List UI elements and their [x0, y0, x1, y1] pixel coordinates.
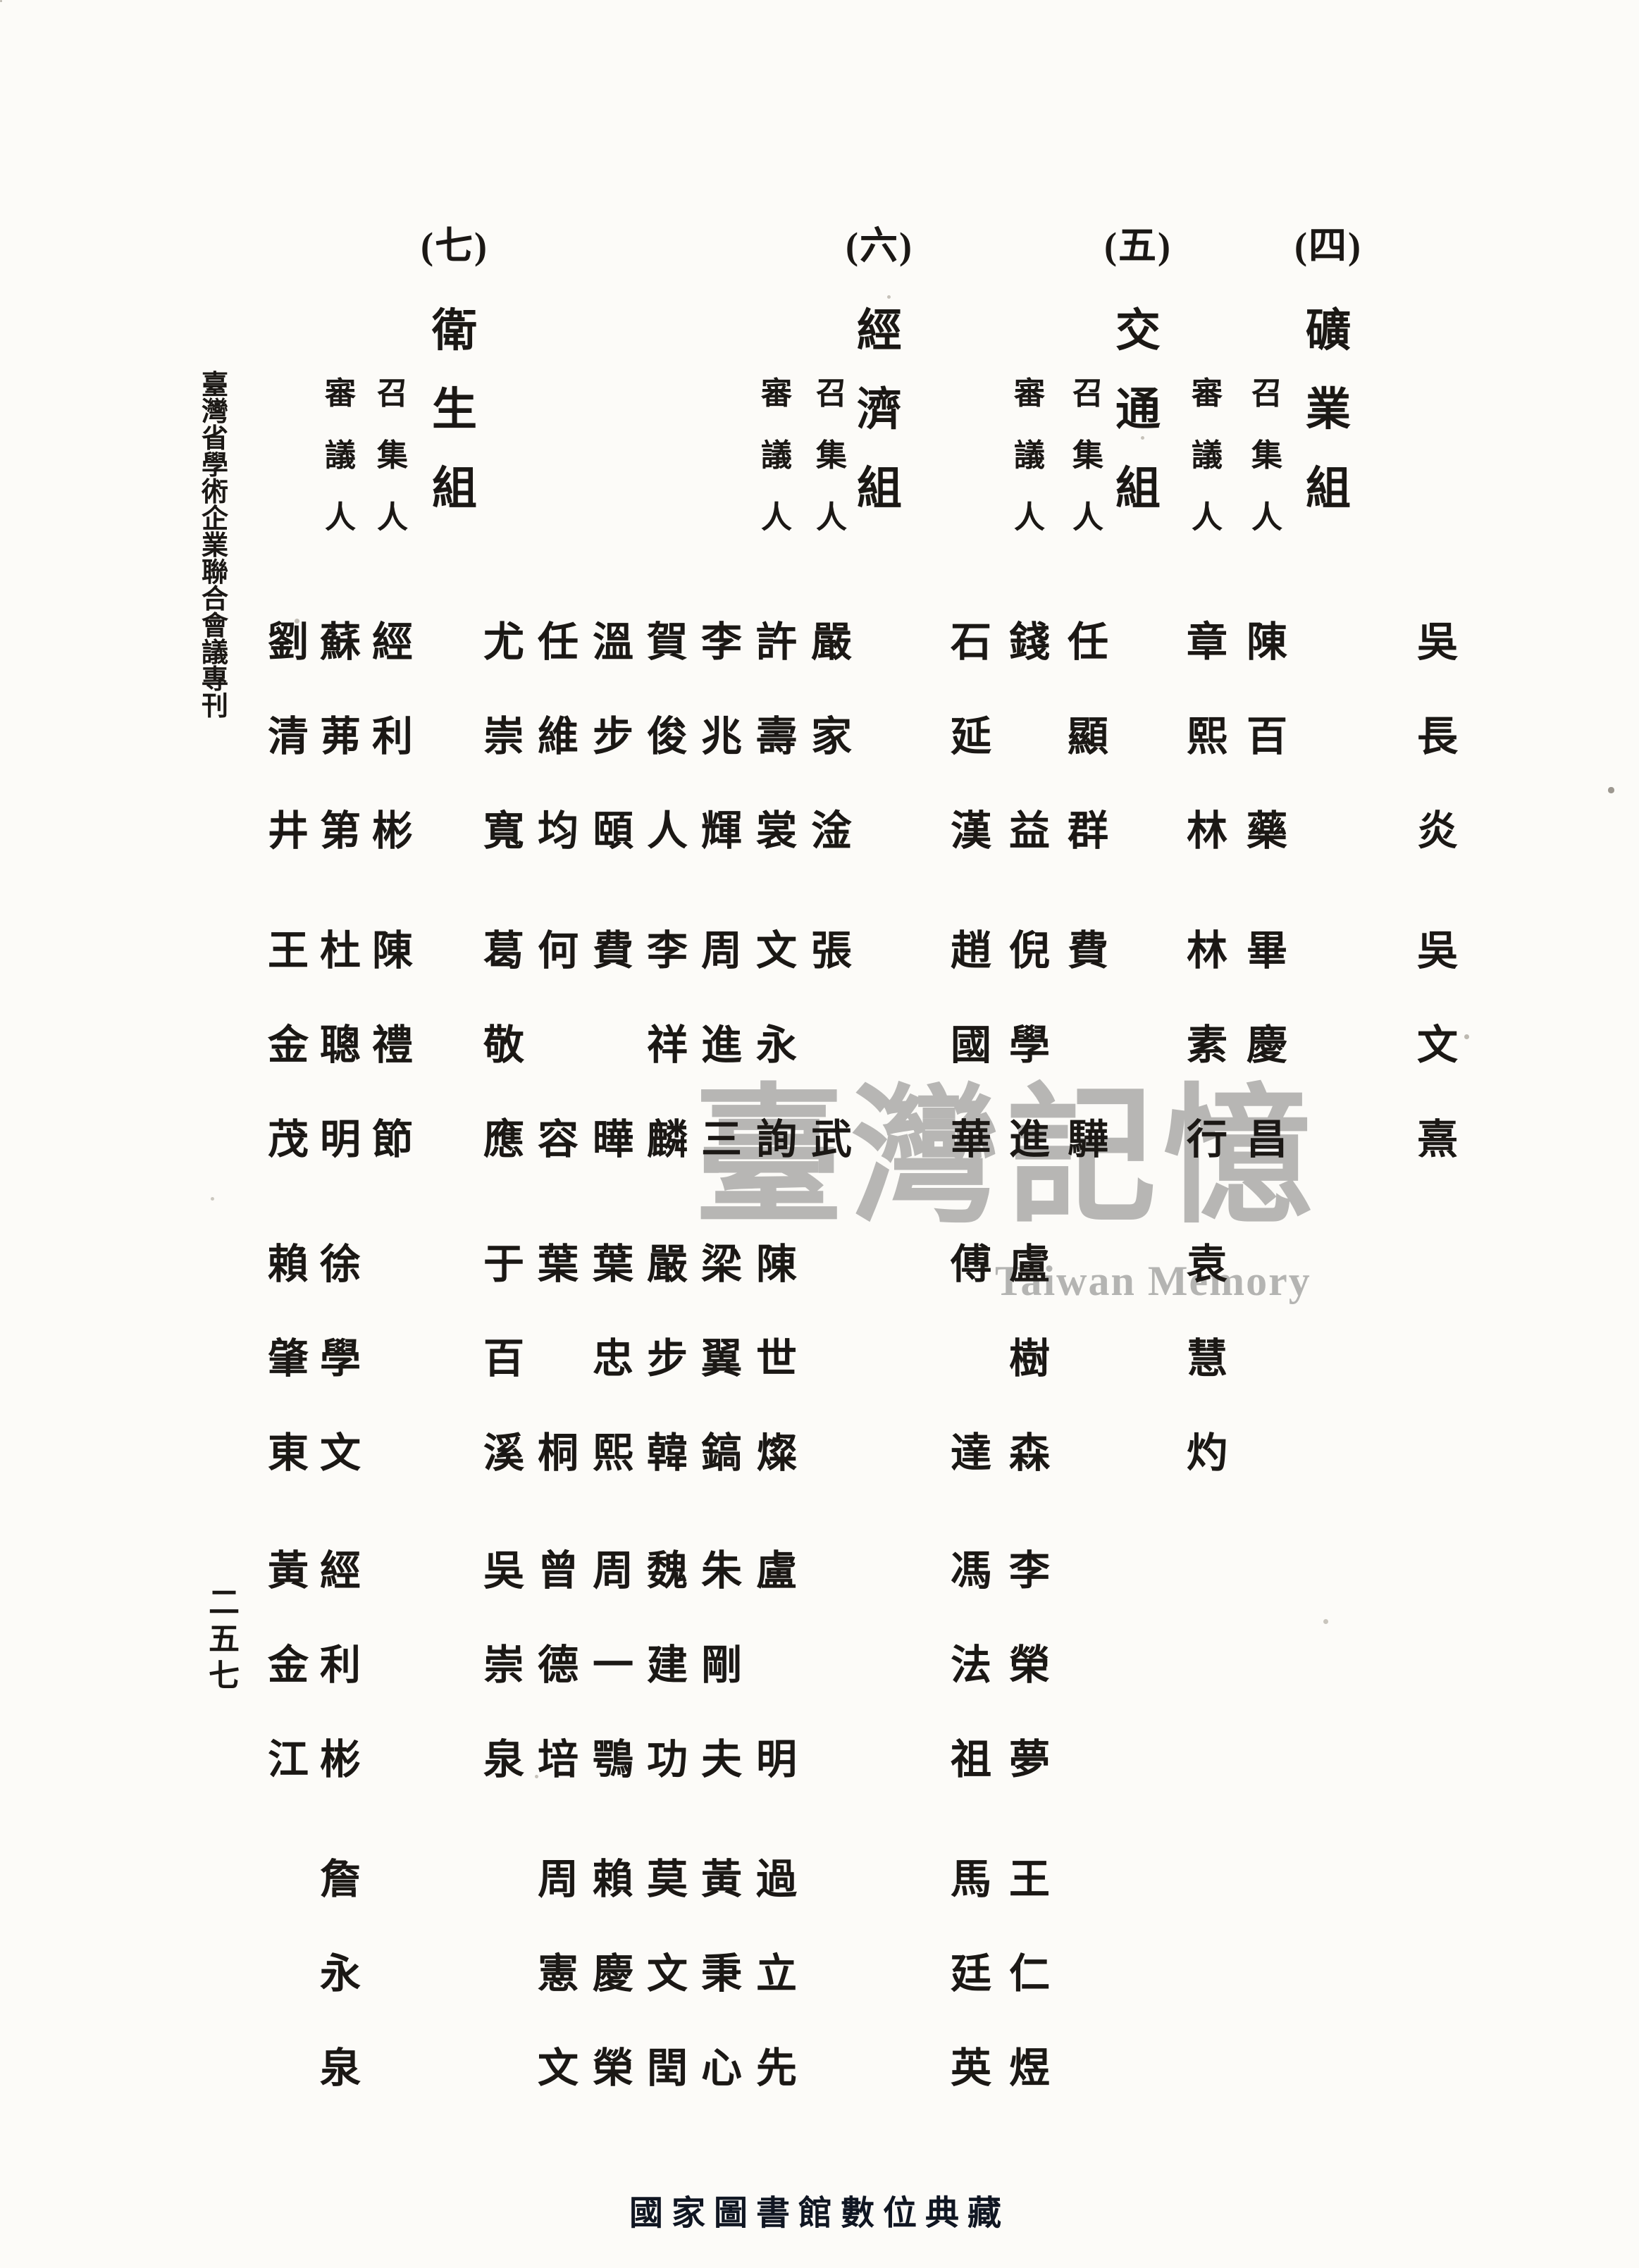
role-label-char: 召: [1251, 378, 1283, 411]
member-name-char: 趙: [951, 931, 991, 972]
member-name-char: 何: [538, 931, 579, 972]
member-name-char: 慶: [593, 1954, 633, 1995]
member-name-char: 裳: [756, 811, 797, 852]
member-name-char: 先: [756, 2048, 797, 2089]
member-name-char: 文: [647, 1954, 688, 1995]
convener-label-transportation: 召集人: [1072, 378, 1104, 564]
member-name-char: 金: [268, 1025, 309, 1066]
member-name-char: 麟: [647, 1120, 688, 1160]
page-content: 吳長炎吳文熹(四)礦業組召集人陳百藥畢慶昌審議人章熙林林素行袁慧灼(五)交通組召…: [0, 0, 1639, 2268]
member-name-char: 文: [538, 2048, 579, 2089]
member-name-mining: 林素行: [1187, 931, 1227, 1214]
member-name-char: 崇: [483, 1645, 524, 1686]
member-name-char: 輝: [701, 811, 742, 852]
member-name-char: 泉: [483, 1740, 524, 1780]
member-name-char: 學: [1009, 1025, 1050, 1066]
member-name-char: 祖: [951, 1740, 991, 1780]
member-name-char: 長: [1417, 717, 1458, 757]
member-name-char: 林: [1187, 931, 1227, 972]
member-name-economy: 魏建功: [647, 1551, 688, 1834]
page-number-char: 五: [209, 1624, 240, 1655]
member-name-char: 利: [372, 717, 413, 757]
role-label-char: 召: [815, 378, 848, 411]
member-name-char: 永: [756, 1025, 797, 1066]
member-name-char: 李: [701, 622, 742, 663]
member-name-economy: 溫步頤: [593, 622, 633, 905]
member-name-char: 炎: [1417, 811, 1458, 852]
member-name-char: 吳: [483, 1551, 524, 1592]
spine-title-char: 省: [201, 426, 229, 452]
member-name-char: 葉: [593, 1244, 633, 1285]
member-name-char: 夢: [1009, 1740, 1050, 1780]
member-name-char: 尤: [483, 622, 524, 663]
member-name-char: 文: [756, 931, 797, 972]
member-name-char: 詹: [320, 1859, 361, 1900]
member-name-mining: 袁慧灼: [1187, 1244, 1227, 1528]
member-name-health: 黃金江: [268, 1551, 309, 1834]
member-name-char: 榮: [1009, 1645, 1050, 1686]
member-name-char: 費: [1068, 931, 1108, 972]
member-name-char: 建: [647, 1645, 688, 1686]
member-name-transportation: 費驊: [1068, 931, 1108, 1214]
member-name-char: 過: [756, 1859, 797, 1900]
member-name-char: 傅: [951, 1244, 991, 1285]
member-name-char: 聰: [320, 1025, 361, 1066]
member-name-transportation: 倪學進: [1009, 931, 1050, 1214]
member-name-char: 梁: [701, 1244, 742, 1285]
member-name-economy: 盧明: [756, 1551, 797, 1834]
member-name-char: 彬: [372, 811, 413, 852]
member-name-economy: 尤崇寬: [483, 622, 524, 905]
member-name-char: 步: [647, 1339, 688, 1380]
member-name-char: 進: [1009, 1120, 1050, 1160]
member-name-char: 夫: [701, 1740, 742, 1780]
role-label-char: 集: [815, 440, 848, 473]
member-name-economy: 文永詢: [756, 931, 797, 1214]
member-name-char: 漢: [951, 811, 991, 852]
member-name-economy: 黃秉心: [701, 1859, 742, 2143]
section-title-char: 礦: [1306, 309, 1351, 354]
member-name-char: 仁: [1009, 1954, 1050, 1995]
member-name-char: 石: [951, 622, 991, 663]
spine-title-char: 合: [201, 586, 229, 613]
member-name-char: 熙: [1187, 717, 1227, 757]
member-name-char: 樹: [1009, 1339, 1050, 1380]
member-name-char: 榮: [593, 2048, 633, 2089]
member-name-char: 百: [483, 1339, 524, 1380]
role-label-char: 議: [760, 440, 793, 473]
member-name-char: 崇: [483, 717, 524, 757]
member-name-economy: 費曄: [593, 931, 633, 1214]
member-name-char: 莫: [647, 1859, 688, 1900]
member-name-economy: 李兆輝: [701, 622, 742, 905]
member-name-char: 鶚: [593, 1740, 633, 1780]
role-label-char: 人: [815, 502, 848, 535]
member-name-char: 王: [1009, 1859, 1050, 1900]
member-name-char: 慶: [1247, 1025, 1287, 1066]
member-name-char: 立: [756, 1954, 797, 1995]
member-name-char: 人: [647, 811, 688, 852]
convener-label-economy: 召集人: [815, 378, 848, 564]
member-name-char: 周: [701, 931, 742, 972]
role-label-char: 集: [376, 440, 409, 473]
member-name-char: 進: [701, 1025, 742, 1066]
member-name-char: 華: [951, 1120, 991, 1160]
member-name-char: 文: [1417, 1025, 1458, 1066]
member-name-char: 李: [647, 931, 688, 972]
member-name-health: 蘇茀第: [320, 622, 361, 905]
member-name-char: 賴: [593, 1859, 633, 1900]
spine-title-char: 專: [201, 667, 229, 693]
member-name-char: 步: [593, 717, 633, 757]
member-name-char: 翼: [701, 1339, 742, 1380]
member-name-char: 功: [647, 1740, 688, 1780]
member-name-economy: 莫文閏: [647, 1859, 688, 2143]
page-number-char: 七: [209, 1661, 240, 1692]
member-name-economy: 任維均: [538, 622, 579, 905]
member-name-health: 經利彬: [372, 622, 413, 905]
section-title-char: 組: [857, 466, 902, 512]
member-name-economy: 許壽裳: [756, 622, 797, 905]
member-name-char: 行: [1187, 1120, 1227, 1160]
member-name-char: 嚴: [647, 1244, 688, 1285]
section-title-char: 通: [1115, 388, 1161, 433]
member-name-transportation: 錢益: [1009, 622, 1050, 905]
member-name-char: 費: [593, 931, 633, 972]
section-title-char: 衛: [432, 309, 477, 354]
page-number-char: 二: [209, 1587, 240, 1618]
member-name-char: 家: [811, 717, 852, 757]
member-name-char: 倪: [1009, 931, 1050, 972]
member-name-char: 學: [320, 1339, 361, 1380]
role-label-char: 審: [760, 378, 793, 411]
member-name-char: 盧: [756, 1551, 797, 1592]
member-name-char: 燦: [756, 1433, 797, 1474]
member-name-char: 韓: [647, 1433, 688, 1474]
section-title-char: 經: [857, 309, 902, 354]
role-label-char: 議: [1191, 440, 1223, 473]
member-name-char: 國: [951, 1025, 991, 1066]
member-name-char: 李: [1009, 1551, 1050, 1592]
role-label-char: 集: [1251, 440, 1283, 473]
section-title-char: 業: [1306, 388, 1351, 433]
member-name-char: 黃: [701, 1859, 742, 1900]
member-name-economy: 賀俊人: [647, 622, 688, 905]
member-name-char: 彬: [320, 1740, 361, 1780]
member-name-char: 許: [756, 622, 797, 663]
member-name-economy: 于百溪: [483, 1244, 524, 1528]
section-marker-mining: (四): [1265, 227, 1392, 265]
section-marker-health: (七): [391, 227, 518, 265]
member-name-char: 詢: [756, 1120, 797, 1160]
member-name-char: 陳: [372, 931, 413, 972]
reviewer-label-mining: 審議人: [1191, 378, 1223, 564]
member-name-char: 維: [538, 717, 579, 757]
member-name-char: 馬: [951, 1859, 991, 1900]
role-label-char: 議: [1013, 440, 1046, 473]
member-name-char: 忠: [593, 1339, 633, 1380]
member-name-char: 英: [951, 2048, 991, 2089]
member-name-char: 法: [951, 1645, 991, 1686]
member-name-char: 茀: [320, 717, 361, 757]
role-label-char: 議: [324, 440, 357, 473]
member-name-char: 畢: [1247, 931, 1287, 972]
role-label-char: 人: [1072, 502, 1104, 535]
member-name-transportation: 傅達: [951, 1244, 991, 1528]
spine-title-char: 學: [201, 452, 229, 479]
member-name-char: 素: [1187, 1025, 1227, 1066]
section-title-char: 生: [432, 388, 477, 433]
member-name-char: 錢: [1009, 622, 1050, 663]
member-name-char: 東: [268, 1433, 309, 1474]
member-name-char: 熹: [1417, 1120, 1458, 1160]
member-name-char: 廷: [951, 1954, 991, 1995]
page-number: 二五七: [209, 1587, 240, 1697]
member-name-char: 秉: [701, 1954, 742, 1995]
member-name-char: 敬: [483, 1025, 524, 1066]
member-name-mining: 畢慶昌: [1247, 931, 1287, 1214]
member-name-char: 三: [701, 1120, 742, 1160]
member-name-economy: 李祥麟: [647, 931, 688, 1214]
member-name-char: 任: [1068, 622, 1108, 663]
member-name-char: 寬: [483, 811, 524, 852]
member-name-health: 王金茂: [268, 931, 309, 1214]
member-name-char: 蘇: [320, 622, 361, 663]
member-name-char: 閏: [647, 2048, 688, 2089]
role-label-char: 人: [376, 502, 409, 535]
role-label-char: 人: [1013, 502, 1046, 535]
member-name-char: 任: [538, 622, 579, 663]
member-name-health: 賴肇東: [268, 1244, 309, 1528]
role-label-char: 人: [760, 502, 793, 535]
reviewer-label-health: 審議人: [324, 378, 357, 564]
member-name-char: 王: [268, 931, 309, 972]
member-name-char: 江: [268, 1740, 309, 1780]
member-name-char: 頤: [593, 811, 633, 852]
member-name-economy: 過立先: [756, 1859, 797, 2143]
member-name-char: 淦: [811, 811, 852, 852]
member-name-economy: 葛敬應: [483, 931, 524, 1214]
member-name-transportation: 李榮夢: [1009, 1551, 1050, 1834]
member-name-char: 茂: [268, 1120, 309, 1160]
member-name-char: 徐: [320, 1244, 361, 1285]
member-name-transportation: 石延漢: [951, 622, 991, 905]
member-name-char: 陳: [1247, 622, 1287, 663]
member-name-char: 憲: [538, 1954, 579, 1995]
spine-title-char: 臺: [201, 372, 229, 399]
member-name-char: 泉: [320, 2048, 361, 2089]
member-name-health: 陳禮節: [372, 931, 413, 1214]
role-label-char: 人: [1191, 502, 1223, 535]
member-name-economy: 周一鶚: [593, 1551, 633, 1834]
member-name-transportation: 任顯群: [1068, 622, 1108, 905]
member-name-char: 祥: [647, 1025, 688, 1066]
member-name-char: 溫: [593, 622, 633, 663]
section-title-transportation: 交通組: [1115, 309, 1161, 545]
spine-title-char: 刊: [201, 693, 229, 720]
reviewer-label-economy: 審議人: [760, 378, 793, 564]
member-name-health: 經利彬: [320, 1551, 361, 1834]
member-name-health: 杜聰明: [320, 931, 361, 1214]
member-name-char: 心: [701, 2048, 742, 2089]
member-name-carryover: 吳長炎: [1417, 622, 1458, 905]
member-name-char: 永: [320, 1954, 361, 1995]
role-label-char: 審: [324, 378, 357, 411]
section-title-mining: 礦業組: [1306, 309, 1351, 545]
member-name-char: 袁: [1187, 1244, 1227, 1285]
member-name-transportation: 王仁煜: [1009, 1859, 1050, 2143]
section-title-char: 濟: [857, 388, 902, 433]
member-name-economy: 朱剛夫: [701, 1551, 742, 1834]
member-name-transportation: 馮法祖: [951, 1551, 991, 1834]
member-name-char: 曾: [538, 1551, 579, 1592]
member-name-char: 明: [756, 1740, 797, 1780]
member-name-economy: 周進三: [701, 931, 742, 1214]
member-name-char: 明: [320, 1120, 361, 1160]
role-label-char: 審: [1013, 378, 1046, 411]
member-name-char: 顯: [1068, 717, 1108, 757]
member-name-char: 熙: [593, 1433, 633, 1474]
member-name-char: 群: [1068, 811, 1108, 852]
spine-title-char: 聯: [201, 559, 229, 586]
member-name-char: 林: [1187, 811, 1227, 852]
role-label-char: 審: [1191, 378, 1223, 411]
role-label-char: 人: [1251, 502, 1283, 535]
member-name-char: 井: [268, 811, 309, 852]
spine-title-char: 業: [201, 533, 229, 559]
member-name-char: 益: [1009, 811, 1050, 852]
spine-title-char: 企: [201, 506, 229, 533]
member-name-char: 張: [811, 931, 852, 972]
member-name-char: 均: [538, 811, 579, 852]
section-title-char: 組: [1115, 466, 1161, 512]
member-name-char: 陳: [756, 1244, 797, 1285]
member-name-char: 百: [1247, 717, 1287, 757]
member-name-char: 吳: [1417, 931, 1458, 972]
member-name-char: 壽: [756, 717, 797, 757]
member-name-char: 吳: [1417, 622, 1458, 663]
role-label-char: 集: [1072, 440, 1104, 473]
member-name-char: 魏: [647, 1551, 688, 1592]
spine-title-char: 灣: [201, 399, 229, 426]
member-name-char: 第: [320, 811, 361, 852]
member-name-economy: 梁翼鎬: [701, 1244, 742, 1528]
member-name-char: 曄: [593, 1120, 633, 1160]
member-name-char: 金: [268, 1645, 309, 1686]
member-name-economy: 陳世燦: [756, 1244, 797, 1528]
member-name-economy: 曾德培: [538, 1551, 579, 1834]
member-name-char: 昌: [1247, 1120, 1287, 1160]
member-name-transportation: 馬廷英: [951, 1859, 991, 2143]
member-name-economy: 張武: [811, 931, 852, 1214]
section-title-char: 組: [1306, 466, 1351, 512]
member-name-transportation: 趙國華: [951, 931, 991, 1214]
member-name-economy: 葉忠熙: [593, 1244, 633, 1528]
spine-title-char: 術: [201, 479, 229, 506]
convener-label-health: 召集人: [376, 378, 409, 564]
section-title-char: 組: [432, 466, 477, 512]
member-name-char: 盧: [1009, 1244, 1050, 1285]
member-name-char: 驊: [1068, 1120, 1108, 1160]
member-name-economy: 賴慶榮: [593, 1859, 633, 2143]
member-name-char: 世: [756, 1339, 797, 1380]
member-name-char: 周: [593, 1551, 633, 1592]
member-name-char: 葉: [538, 1244, 579, 1285]
member-name-char: 鎬: [701, 1433, 742, 1474]
member-name-health: 徐學文: [320, 1244, 361, 1528]
member-name-char: 經: [372, 622, 413, 663]
member-name-char: 文: [320, 1433, 361, 1474]
member-name-mining: 章熙林: [1187, 622, 1227, 905]
member-name-char: 禮: [372, 1025, 413, 1066]
section-title-economy: 經濟組: [857, 309, 902, 545]
convener-label-mining: 召集人: [1251, 378, 1283, 564]
member-name-char: 杜: [320, 931, 361, 972]
spine-title-char: 會: [201, 613, 229, 640]
member-name-char: 經: [320, 1551, 361, 1592]
member-name-char: 煜: [1009, 2048, 1050, 2089]
member-name-char: 達: [951, 1433, 991, 1474]
member-name-char: 周: [538, 1859, 579, 1900]
member-name-char: 武: [811, 1120, 852, 1160]
role-label-char: 召: [376, 378, 409, 411]
scanned-page: 臺灣記憶 Taiwan Memory 吳長炎吳文熹(四)礦業組召集人陳百藥畢慶昌…: [0, 0, 1639, 2268]
member-name-char: 利: [320, 1645, 361, 1686]
member-name-char: 朱: [701, 1551, 742, 1592]
member-name-mining: 陳百藥: [1247, 622, 1287, 905]
member-name-transportation: 盧樹森: [1009, 1244, 1050, 1528]
member-name-economy: 吳崇泉: [483, 1551, 524, 1834]
member-name-char: 肇: [268, 1339, 309, 1380]
member-name-char: 章: [1187, 622, 1227, 663]
member-name-char: 馮: [951, 1551, 991, 1592]
section-marker-transportation: (五): [1075, 227, 1201, 265]
member-name-char: 森: [1009, 1433, 1050, 1474]
member-name-char: 培: [538, 1740, 579, 1780]
member-name-char: 容: [538, 1120, 579, 1160]
member-name-economy: 何容: [538, 931, 579, 1214]
member-name-char: 葛: [483, 931, 524, 972]
role-label-char: 召: [1072, 378, 1104, 411]
member-name-char: 兆: [701, 717, 742, 757]
member-name-char: 藥: [1247, 811, 1287, 852]
member-name-char: 灼: [1187, 1433, 1227, 1474]
member-name-economy: 嚴步韓: [647, 1244, 688, 1528]
role-label-char: 人: [324, 502, 357, 535]
member-name-char: 黃: [268, 1551, 309, 1592]
member-name-char: 一: [593, 1645, 633, 1686]
member-name-economy: 周憲文: [538, 1859, 579, 2143]
member-name-carryover: 吳文熹: [1417, 931, 1458, 1214]
member-name-char: 劉: [268, 622, 309, 663]
member-name-char: 慧: [1187, 1339, 1227, 1380]
member-name-char: 賴: [268, 1244, 309, 1285]
member-name-char: 剛: [701, 1645, 742, 1686]
member-name-economy: 葉桐: [538, 1244, 579, 1528]
spine-title-char: 議: [201, 640, 229, 667]
member-name-char: 桐: [538, 1433, 579, 1474]
member-name-char: 嚴: [811, 622, 852, 663]
member-name-char: 節: [372, 1120, 413, 1160]
section-marker-economy: (六): [816, 227, 943, 265]
member-name-char: 于: [483, 1244, 524, 1285]
member-name-char: 清: [268, 717, 309, 757]
member-name-health: 劉清井: [268, 622, 309, 905]
member-name-char: 延: [951, 717, 991, 757]
spine-title: 臺灣省學術企業聯合會議專刊: [201, 372, 229, 720]
member-name-char: 俊: [647, 717, 688, 757]
section-title-char: 交: [1115, 309, 1161, 354]
